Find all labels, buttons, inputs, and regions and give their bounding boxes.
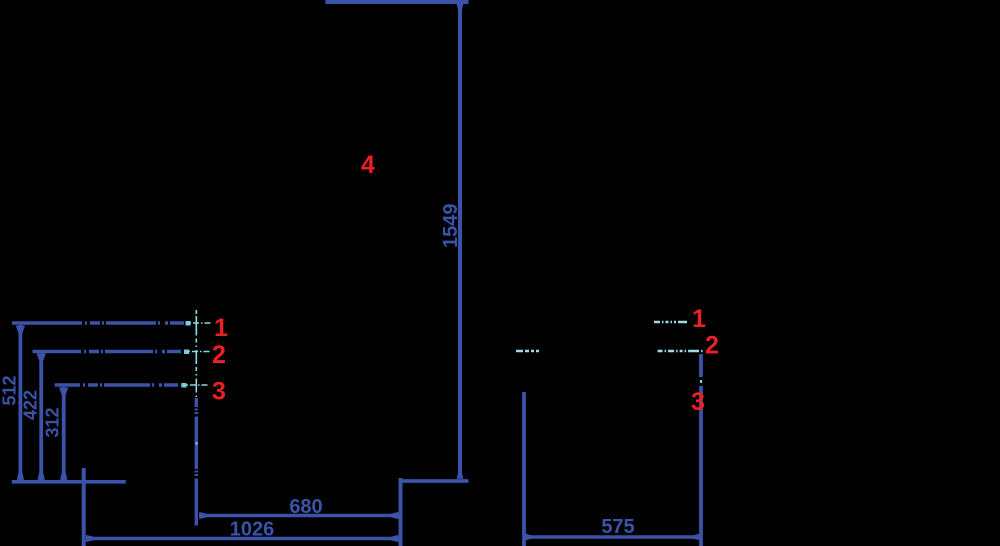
svg-text:680: 680: [289, 496, 322, 518]
svg-text:2: 2: [705, 332, 719, 360]
svg-text:422: 422: [21, 390, 41, 420]
svg-text:575: 575: [601, 516, 634, 538]
svg-text:1026: 1026: [230, 519, 275, 541]
svg-text:312: 312: [43, 407, 63, 437]
svg-text:3: 3: [691, 388, 705, 416]
svg-text:1549: 1549: [440, 204, 462, 249]
svg-text:1: 1: [692, 305, 706, 333]
svg-text:2: 2: [212, 341, 226, 369]
svg-text:1: 1: [214, 314, 228, 342]
svg-text:3: 3: [212, 378, 226, 406]
svg-text:4: 4: [361, 151, 375, 179]
svg-text:512: 512: [0, 375, 20, 405]
